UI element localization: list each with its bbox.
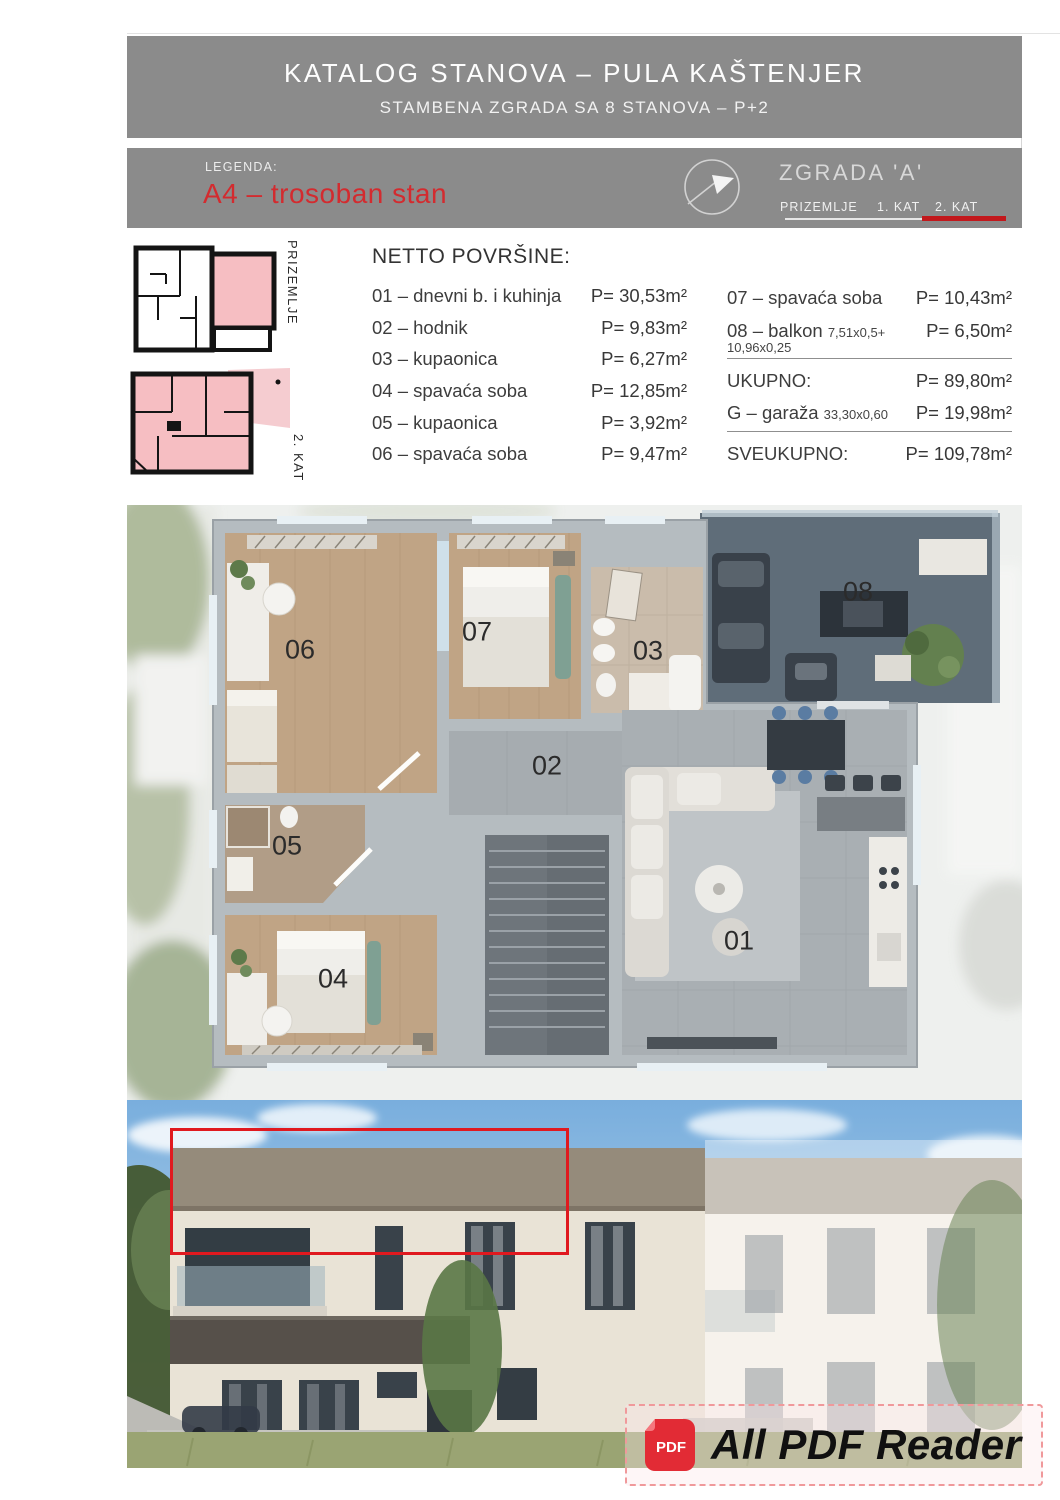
- area-row: 06 – spavaća soba P= 9,47m²: [372, 438, 687, 470]
- area-note: 10,96x0,25: [727, 340, 791, 355]
- room-label-04: 04: [318, 964, 348, 995]
- area-value: P= 12,85m²: [591, 380, 687, 402]
- area-row: 04 – spavaća soba P= 12,85m²: [372, 375, 687, 407]
- floor-tab-1kat[interactable]: 1. KAT: [877, 200, 920, 214]
- area-value: P= 89,80m²: [916, 370, 1012, 392]
- miniplan-2kat: [128, 366, 293, 480]
- areas-title: NETTO POVRŠINE:: [372, 245, 570, 269]
- area-label: 07 – spavaća soba: [727, 287, 882, 309]
- miniplan-label-2kat: 2. KAT: [291, 434, 306, 484]
- miniplan-label-prizemlje: PRIZEMLJE: [285, 240, 300, 355]
- miniplan-prizemlje: [130, 238, 280, 356]
- doc-title: KATALOG STANOVA – PULA KAŠTENJER: [127, 58, 1022, 89]
- areas-left-column: 01 – dnevni b. i kuhinja P= 30,53m² 02 –…: [372, 280, 687, 470]
- room-label-08: 08: [843, 577, 873, 608]
- room-label-06: 06: [285, 635, 315, 666]
- separator: [727, 358, 1012, 359]
- apartment-highlight-box: [170, 1128, 569, 1255]
- area-row: UKUPNO: P= 89,80m²: [727, 367, 1012, 395]
- area-row: 01 – dnevni b. i kuhinja P= 30,53m²: [372, 280, 687, 312]
- area-value: P= 10,43m²: [916, 287, 1012, 309]
- area-label: G – garaža 33,30x0,60: [727, 402, 888, 424]
- area-label: 05 – kupaonica: [372, 412, 498, 434]
- area-row: 07 – spavaća soba P= 10,43m²: [727, 284, 1012, 312]
- area-value: P= 109,78m²: [906, 443, 1012, 465]
- area-row: 05 – kupaonica P= 3,92m²: [372, 407, 687, 439]
- legend-band: LEGENDA: A4 – trosoban stan ZGRADA 'A' P…: [127, 148, 1022, 228]
- compass-icon: [679, 154, 745, 220]
- floor-tab-2kat[interactable]: 2. KAT: [935, 200, 978, 214]
- room-label-03: 03: [633, 636, 663, 667]
- unit-title: A4 – trosoban stan: [203, 178, 447, 210]
- area-label: 01 – dnevni b. i kuhinja: [372, 285, 561, 307]
- document-page: KATALOG STANOVA – PULA KAŠTENJER STAMBEN…: [0, 0, 1060, 1500]
- doc-subtitle: STAMBENA ZGRADA SA 8 STANOVA – P+2: [127, 98, 1022, 118]
- area-value: P= 9,83m²: [601, 317, 687, 339]
- watermark-text: All PDF Reader: [711, 1421, 1021, 1469]
- area-value: P= 19,98m²: [916, 402, 1012, 424]
- info-section: PRIZEMLJE 2. KAT NETTO POVRŠINE: 01 –: [127, 228, 1022, 505]
- area-note: 33,30x0,60: [824, 407, 888, 422]
- area-value: P= 6,50m²: [926, 320, 1012, 342]
- building-title: ZGRADA 'A': [779, 160, 924, 186]
- separator: [727, 431, 1012, 432]
- area-row: 02 – hodnik P= 9,83m²: [372, 312, 687, 344]
- area-value: P= 3,92m²: [601, 412, 687, 434]
- room-label-01: 01: [724, 926, 754, 957]
- area-label: 08 – balkon 7,51x0,5+: [727, 320, 885, 342]
- area-value: P= 9,47m²: [601, 443, 687, 465]
- active-tab-underline: [922, 216, 1006, 221]
- legend-label: LEGENDA:: [205, 160, 278, 174]
- area-value: P= 6,27m²: [601, 348, 687, 370]
- watermark[interactable]: PDF All PDF Reader: [625, 1404, 1043, 1486]
- header-band: KATALOG STANOVA – PULA KAŠTENJER STAMBEN…: [127, 36, 1022, 138]
- area-label: UKUPNO:: [727, 370, 811, 392]
- floor-tab-prizemlje[interactable]: PRIZEMLJE: [780, 200, 858, 214]
- page-top-edge: [127, 33, 1060, 34]
- area-note: 7,51x0,5+: [828, 325, 885, 340]
- area-label: 03 – kupaonica: [372, 348, 498, 370]
- area-row: G – garaža 33,30x0,60 P= 19,98m²: [727, 399, 1012, 427]
- room-label-05: 05: [272, 831, 302, 862]
- area-value: P= 30,53m²: [591, 285, 687, 307]
- area-label: 04 – spavaća soba: [372, 380, 527, 402]
- pdf-icon-text: PDF: [656, 1439, 686, 1456]
- tab-underline: [785, 218, 930, 220]
- pdf-icon: PDF: [643, 1417, 697, 1473]
- floor-plan-image: 06 07 03 08 02 05 04 01: [127, 505, 1022, 1100]
- area-label: SVEUKUPNO:: [727, 443, 848, 465]
- area-row: 03 – kupaonica P= 6,27m²: [372, 343, 687, 375]
- area-row: SVEUKUPNO: P= 109,78m²: [727, 440, 1012, 468]
- floor-plan-render: [127, 505, 1022, 1100]
- area-label: 06 – spavaća soba: [372, 443, 527, 465]
- area-label: 02 – hodnik: [372, 317, 468, 339]
- room-label-07: 07: [462, 617, 492, 648]
- room-label-02: 02: [532, 751, 562, 782]
